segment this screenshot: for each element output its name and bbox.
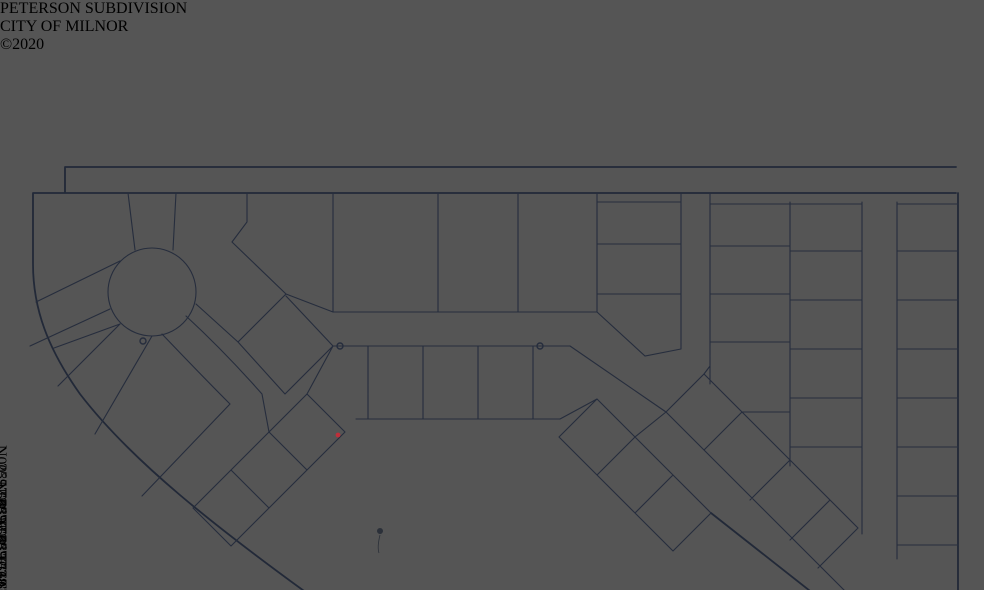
copyright-watermark: ©2020 bbox=[0, 36, 984, 54]
peterson-circle-culdesac bbox=[108, 248, 196, 336]
plat-sign-photo: PETERSON SUBDIVISION CITY OF MILNOR ©202… bbox=[0, 0, 984, 590]
page-title: PETERSON SUBDIVISION CITY OF MILNOR bbox=[0, 0, 984, 36]
speck-mark bbox=[377, 528, 383, 553]
measurement-label: 101.48' bbox=[0, 571, 9, 590]
plat-line-drawing bbox=[0, 54, 984, 590]
red-dot-mark bbox=[336, 433, 341, 438]
survey-monument-icon bbox=[140, 338, 146, 344]
boundary-lines bbox=[33, 167, 958, 590]
subdivision-title: PETERSON SUBDIVISION bbox=[0, 0, 984, 18]
city-subtitle: CITY OF MILNOR bbox=[0, 18, 984, 36]
lot-lines bbox=[30, 193, 958, 590]
